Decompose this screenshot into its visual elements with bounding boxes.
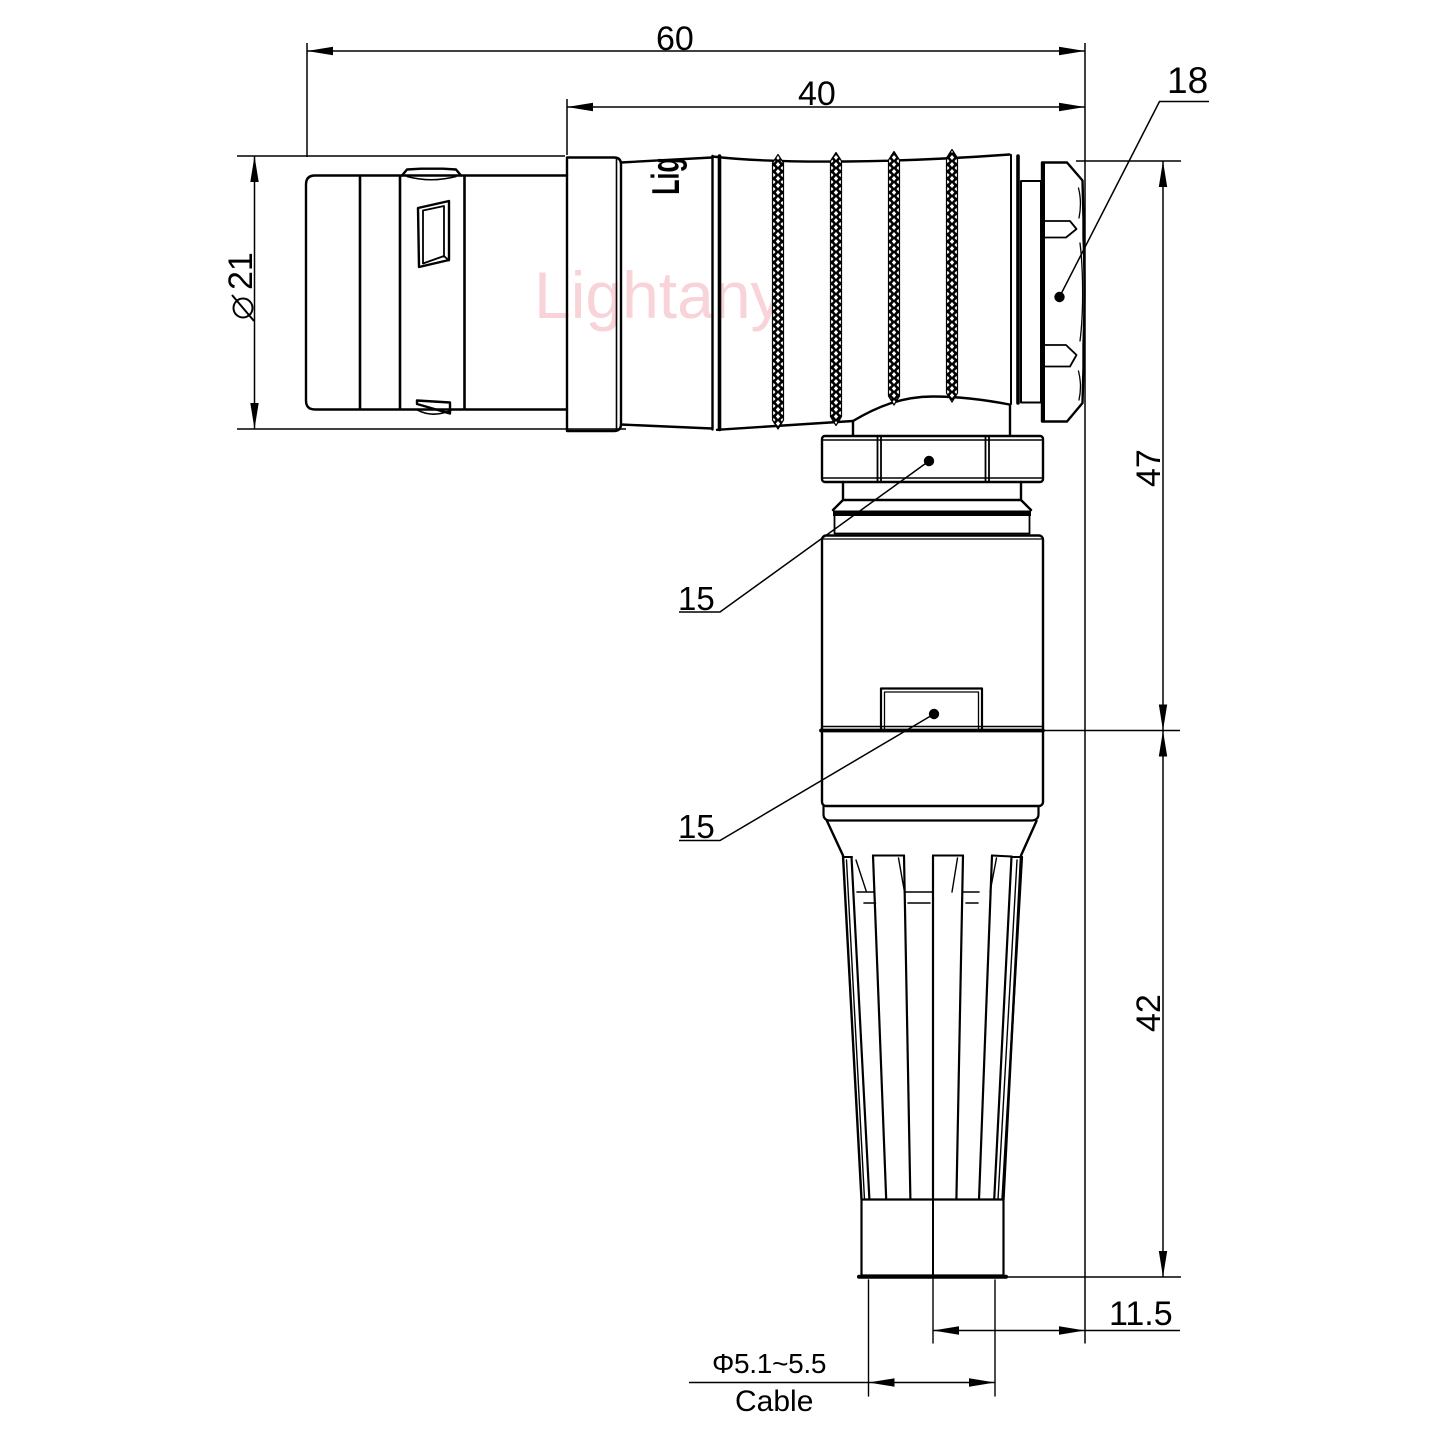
svg-text:Cable: Cable bbox=[735, 1385, 813, 1418]
svg-text:18: 18 bbox=[1167, 60, 1208, 101]
svg-text:15: 15 bbox=[678, 808, 715, 845]
svg-text:40: 40 bbox=[798, 75, 836, 113]
svg-text:21: 21 bbox=[222, 252, 260, 290]
svg-text:Lightany: Lightany bbox=[534, 258, 784, 332]
svg-text:47: 47 bbox=[1130, 449, 1168, 487]
svg-text:15: 15 bbox=[678, 580, 715, 617]
svg-text:Lig: Lig bbox=[643, 157, 687, 194]
svg-text:11.5: 11.5 bbox=[1109, 1295, 1173, 1333]
svg-text:Φ5.1~5.5: Φ5.1~5.5 bbox=[712, 1348, 826, 1379]
svg-text:60: 60 bbox=[656, 20, 694, 58]
svg-text:42: 42 bbox=[1130, 994, 1168, 1032]
